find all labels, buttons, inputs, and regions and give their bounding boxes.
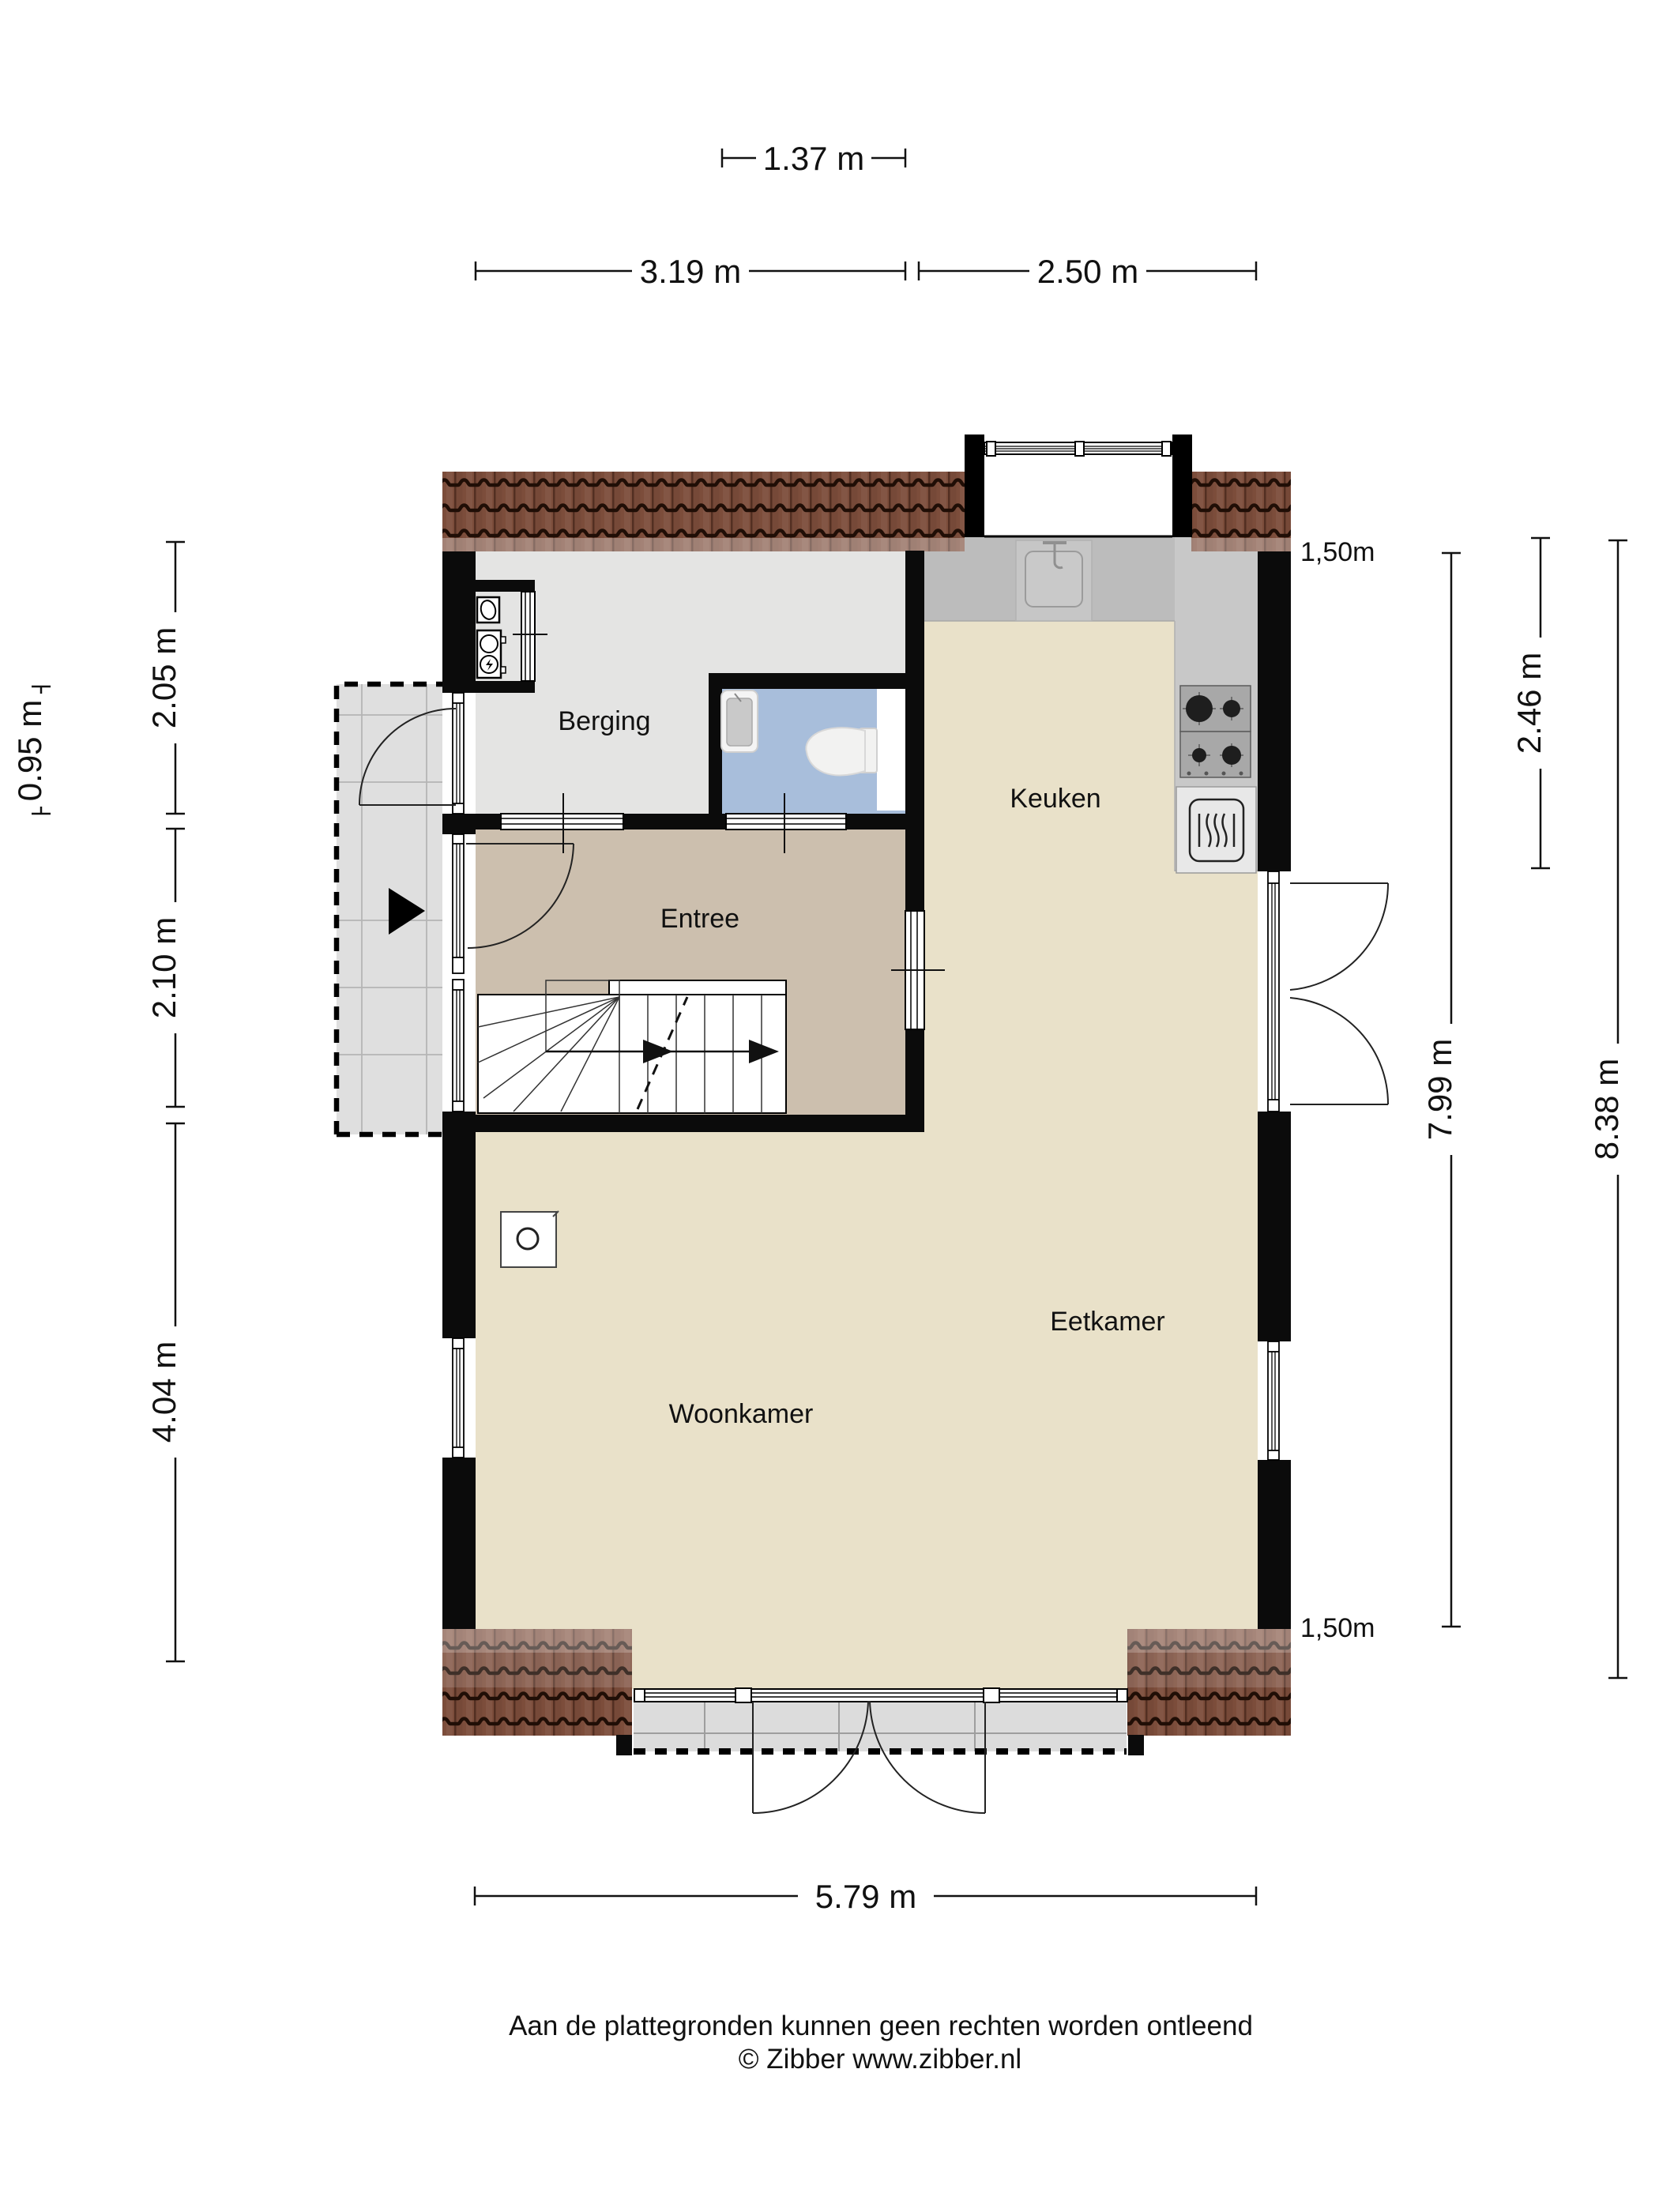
svg-text:2.05 m: 2.05 m [145, 627, 182, 728]
svg-text:Eetkamer: Eetkamer [1050, 1307, 1165, 1337]
svg-text:Entree: Entree [660, 904, 739, 934]
svg-text:4.04 m: 4.04 m [145, 1341, 182, 1443]
svg-text:1.37 m: 1.37 m [763, 140, 864, 177]
svg-text:Berging: Berging [558, 706, 650, 736]
svg-text:2.10 m: 2.10 m [145, 917, 182, 1018]
svg-text:Woonkamer: Woonkamer [669, 1399, 814, 1429]
svg-text:7.99 m: 7.99 m [1421, 1039, 1458, 1140]
svg-text:3.19 m: 3.19 m [640, 253, 741, 290]
svg-text:1,50m: 1,50m [1300, 537, 1375, 567]
svg-text:0.95 m: 0.95 m [11, 700, 48, 801]
svg-text:2.46 m: 2.46 m [1510, 653, 1548, 754]
svg-text:8.38 m: 8.38 m [1588, 1059, 1625, 1160]
svg-text:© Zibber www.zibber.nl: © Zibber www.zibber.nl [739, 2044, 1021, 2075]
svg-text:2.50 m: 2.50 m [1037, 253, 1138, 290]
svg-text:Keuken: Keuken [1010, 784, 1100, 814]
svg-text:Aan de plattegronden kunnen ge: Aan de plattegronden kunnen geen rechten… [509, 2011, 1253, 2041]
svg-text:5.79 m: 5.79 m [815, 1878, 916, 1915]
svg-text:1,50m: 1,50m [1300, 1613, 1375, 1643]
